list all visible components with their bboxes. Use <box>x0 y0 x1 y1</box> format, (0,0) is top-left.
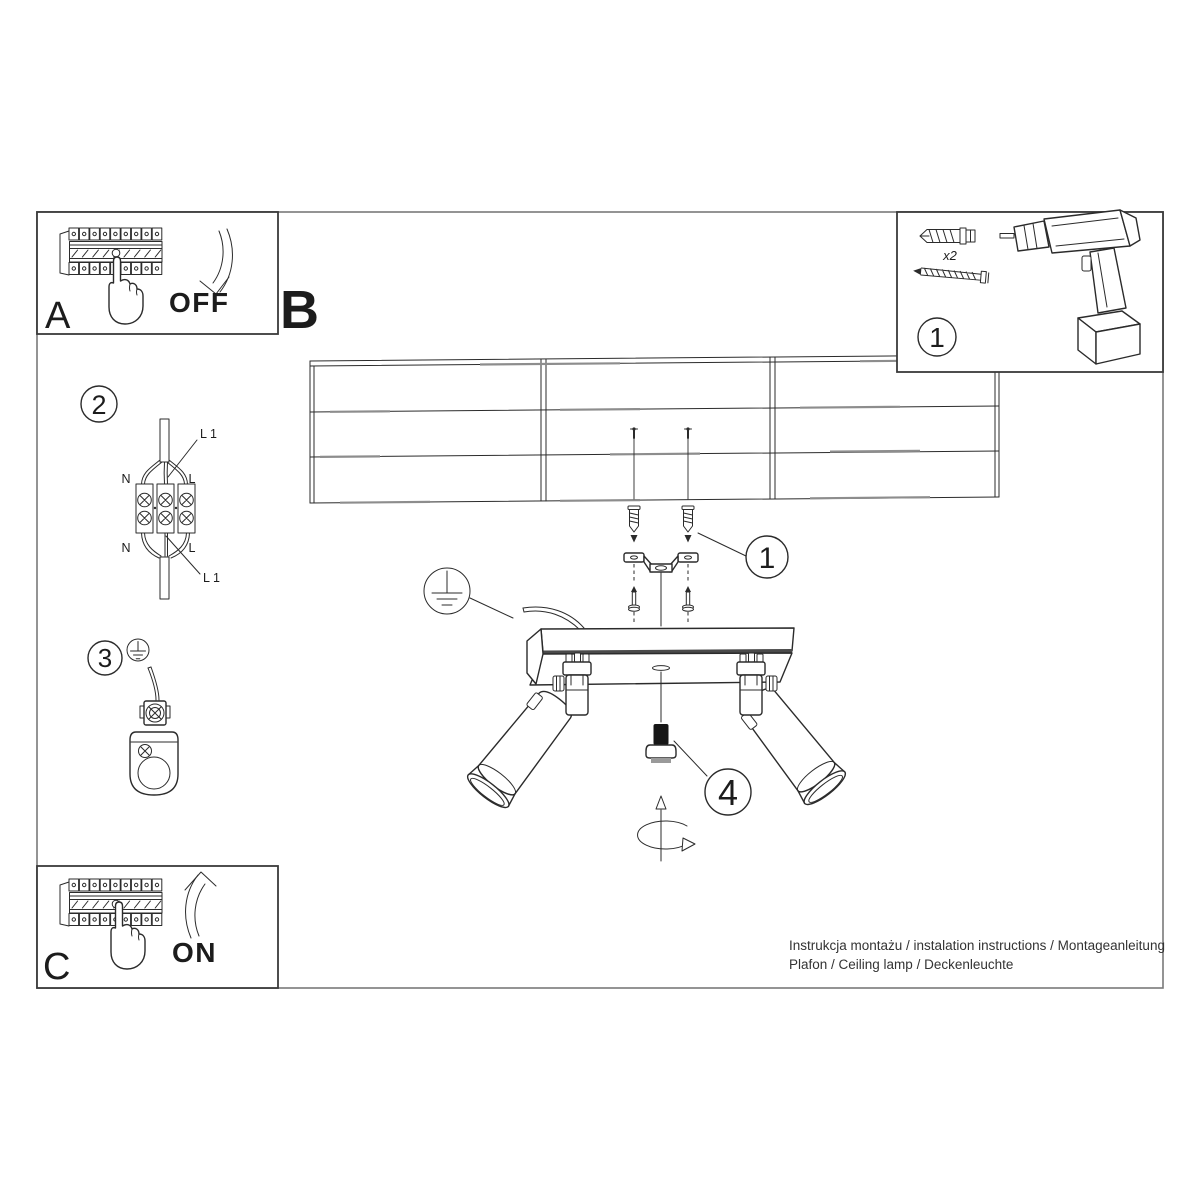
wire-label-n-top: N <box>121 472 130 486</box>
ground-bracket-icon <box>130 732 178 795</box>
svg-text:3: 3 <box>98 643 112 673</box>
ceiling-planks <box>310 355 999 503</box>
earth-symbol-icon <box>127 639 149 661</box>
wire-label-n-bottom: N <box>121 541 130 555</box>
wiring-step-badge: 2 <box>81 386 117 422</box>
base-screw-left <box>629 586 640 611</box>
base-screw-right <box>683 586 694 611</box>
ceiling-anchor-left <box>628 506 640 543</box>
breaker-panel-icon <box>60 228 162 275</box>
wiring-diagram: 2 <box>81 386 220 599</box>
section-a-label: A <box>45 295 71 337</box>
footer: Instrukcja montażu / instalation instruc… <box>789 938 1165 972</box>
spotlight-shade-left <box>464 684 580 813</box>
breaker-panel-icon <box>60 879 162 926</box>
diagram-canvas: x2 1 B <box>0 0 1200 1200</box>
svg-text:4: 4 <box>718 772 738 813</box>
instruction-sheet: x2 1 B <box>0 0 1200 1200</box>
rotation-arrow-icon <box>638 796 695 861</box>
kit-box: x2 1 <box>897 210 1163 372</box>
thumb-screw-icon <box>646 724 676 763</box>
wire-label-l1-bottom: L 1 <box>203 571 220 585</box>
earth-symbol-icon <box>424 568 513 618</box>
section-b-label: B <box>280 280 319 340</box>
footer-line-2: Plafon / Ceiling lamp / Deckenleuchte <box>789 957 1013 972</box>
wire-label-l-top: L <box>189 472 196 486</box>
footer-line-1: Instrukcja montażu / instalation instruc… <box>789 938 1165 953</box>
wire-label-l1-top: L 1 <box>200 427 217 441</box>
off-label: OFF <box>169 287 230 318</box>
mounting-bracket <box>624 553 698 572</box>
ceiling-anchor-right <box>682 506 694 543</box>
ceiling-marking-screws <box>631 427 692 499</box>
ground-wire <box>523 607 584 630</box>
kit-step-badge: 1 <box>918 318 956 356</box>
wire-label-l-bottom: L <box>189 541 196 555</box>
anchor-quantity-label: x2 <box>942 248 958 263</box>
svg-text:1: 1 <box>929 322 945 353</box>
power-on-box: ON C <box>37 866 278 988</box>
bracket-step-badge: 1 <box>698 533 788 578</box>
power-off-box: OFF A <box>37 212 278 337</box>
section-c-label: C <box>43 946 70 988</box>
svg-text:2: 2 <box>91 390 106 420</box>
knob-step-badge: 4 <box>674 741 751 815</box>
ground-clamp-diagram: 3 <box>88 639 178 795</box>
mounting-assembly: 1 <box>424 506 849 861</box>
ground-step-badge: 3 <box>88 641 122 675</box>
on-label: ON <box>172 937 217 968</box>
wall-plug-icon <box>920 228 975 244</box>
svg-text:1: 1 <box>759 542 776 575</box>
ground-terminal-icon <box>140 701 170 725</box>
